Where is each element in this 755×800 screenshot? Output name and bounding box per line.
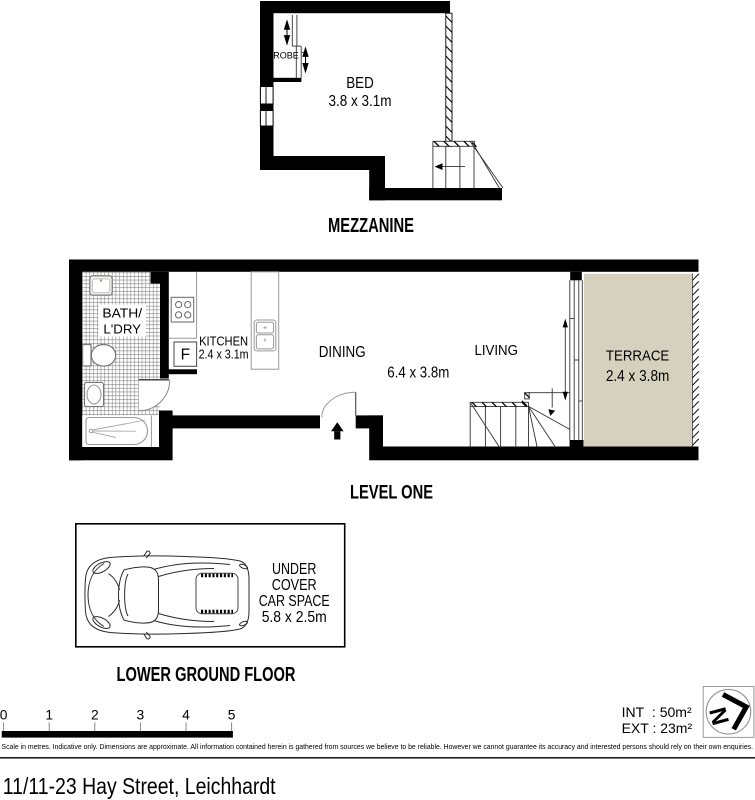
svg-text:MEZZANINE: MEZZANINE <box>328 215 414 237</box>
svg-text:LOWER GROUND FLOOR: LOWER GROUND FLOOR <box>117 664 296 686</box>
svg-text:2: 2 <box>91 708 99 723</box>
svg-text:INT : 50m²: INT : 50m² <box>622 704 692 720</box>
svg-text:4: 4 <box>182 708 190 723</box>
svg-text:LEVEL ONE: LEVEL ONE <box>350 483 433 504</box>
svg-text:1: 1 <box>45 708 53 723</box>
svg-text:COVER: COVER <box>272 577 317 594</box>
svg-text:L'DRY: L'DRY <box>103 322 141 337</box>
svg-text:Scale in metres. Indicative on: Scale in metres. Indicative only. Dimens… <box>2 743 754 751</box>
svg-text:5: 5 <box>228 708 236 723</box>
svg-text:UNDER: UNDER <box>272 561 316 578</box>
svg-text:2.4 x 3.1m: 2.4 x 3.1m <box>199 348 249 362</box>
svg-text:F: F <box>181 347 190 364</box>
svg-text:BATH/: BATH/ <box>102 305 142 320</box>
svg-text:2.4 x 3.8m: 2.4 x 3.8m <box>606 368 670 385</box>
svg-text:3.8 x 3.1m: 3.8 x 3.1m <box>329 93 392 110</box>
svg-text:5.8 x 2.5m: 5.8 x 2.5m <box>262 609 327 626</box>
svg-text:0: 0 <box>0 708 8 723</box>
svg-text:DINING: DINING <box>319 344 366 361</box>
svg-text:ROBE: ROBE <box>273 50 299 60</box>
svg-text:3: 3 <box>137 708 145 723</box>
svg-text:TERRACE: TERRACE <box>606 349 670 365</box>
svg-text:BED: BED <box>346 75 374 92</box>
svg-text:CAR SPACE: CAR SPACE <box>259 593 330 610</box>
svg-text:11/11-23 Hay Street, Leichhard: 11/11-23 Hay Street, Leichhardt <box>3 772 276 799</box>
svg-text:6.4 x 3.8m: 6.4 x 3.8m <box>387 365 449 382</box>
svg-text:LIVING: LIVING <box>474 343 518 359</box>
svg-text:EXT : 23m²: EXT : 23m² <box>622 720 693 736</box>
